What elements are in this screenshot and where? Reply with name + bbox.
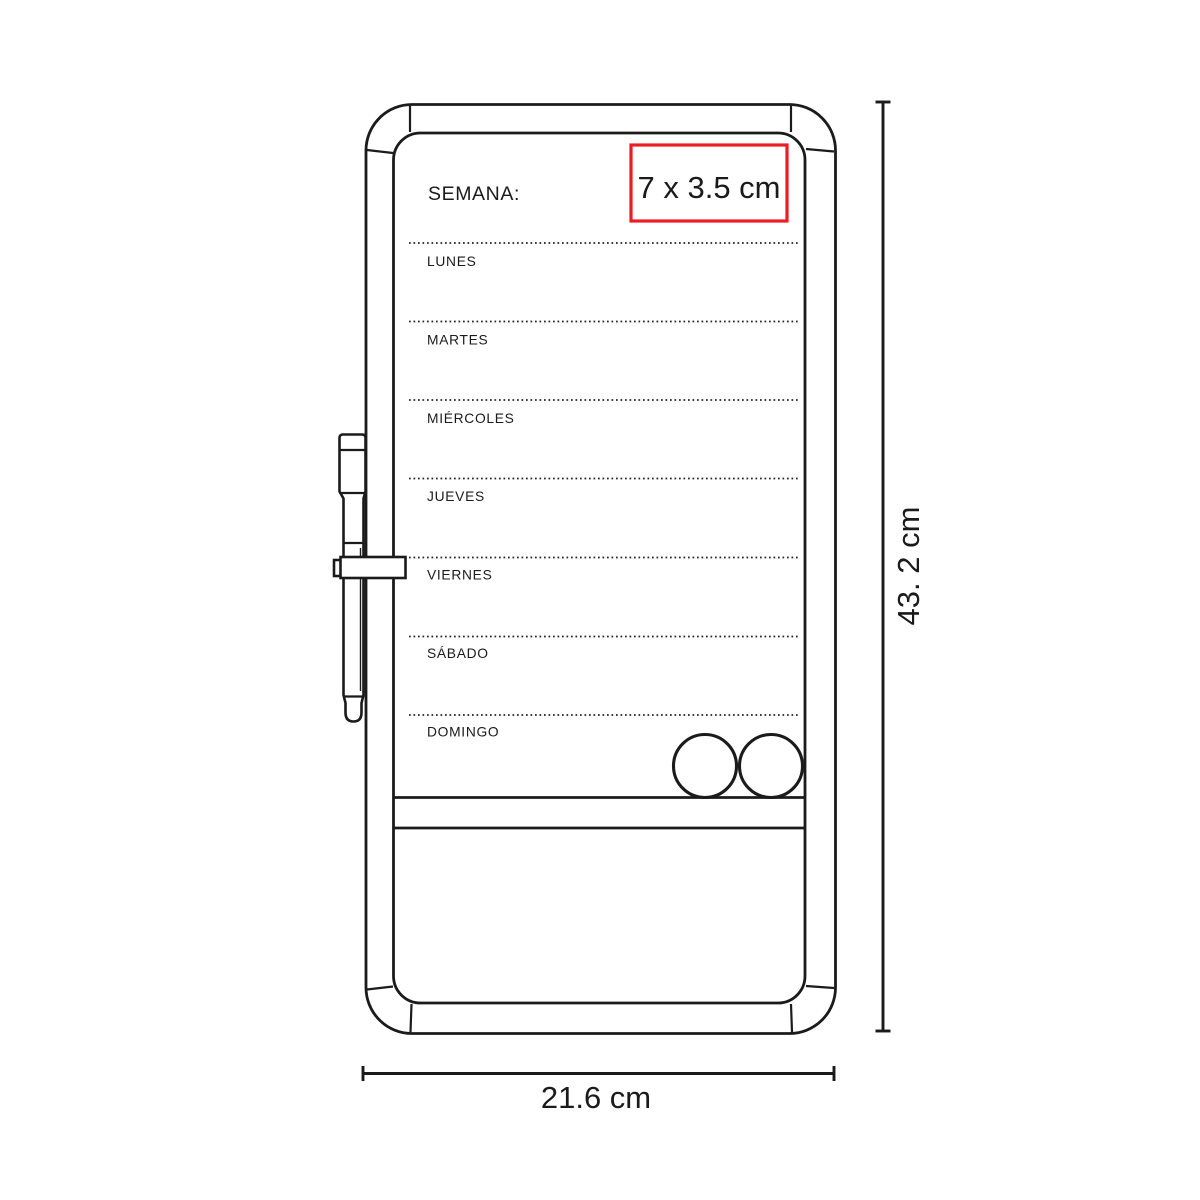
pen-holder xyxy=(334,557,406,578)
day-row-separators xyxy=(409,243,800,715)
width-dimension-label: 21.6 cm xyxy=(541,1080,651,1115)
print-area-label: 7 x 3.5 cm xyxy=(638,170,781,205)
day-label-sabado: SÁBADO xyxy=(427,645,489,661)
day-label-jueves: JUEVES xyxy=(427,489,485,504)
week-header-label: SEMANA: xyxy=(428,183,520,205)
magnet xyxy=(674,735,737,798)
day-label-domingo: DOMINGO xyxy=(427,725,499,740)
marker-tray xyxy=(394,798,806,829)
height-dimension: 43. 2 cm xyxy=(876,102,927,1031)
print-area: 7 x 3.5 cm xyxy=(631,145,787,221)
day-label-miercoles: MIÉRCOLES xyxy=(427,410,515,426)
day-label-lunes: LUNES xyxy=(427,254,477,269)
product-spec-diagram: SEMANA: LUNES MARTES MIÉRCOLES JUEVES VI… xyxy=(0,0,1200,1200)
day-labels: LUNES MARTES MIÉRCOLES JUEVES VIERNES SÁ… xyxy=(427,254,515,740)
magnet xyxy=(740,735,803,798)
width-dimension: 21.6 cm xyxy=(363,1066,834,1115)
day-label-martes: MARTES xyxy=(427,333,488,348)
height-dimension-label: 43. 2 cm xyxy=(891,507,926,626)
day-label-viernes: VIERNES xyxy=(427,568,492,583)
pen-holder-bracket xyxy=(341,557,406,578)
